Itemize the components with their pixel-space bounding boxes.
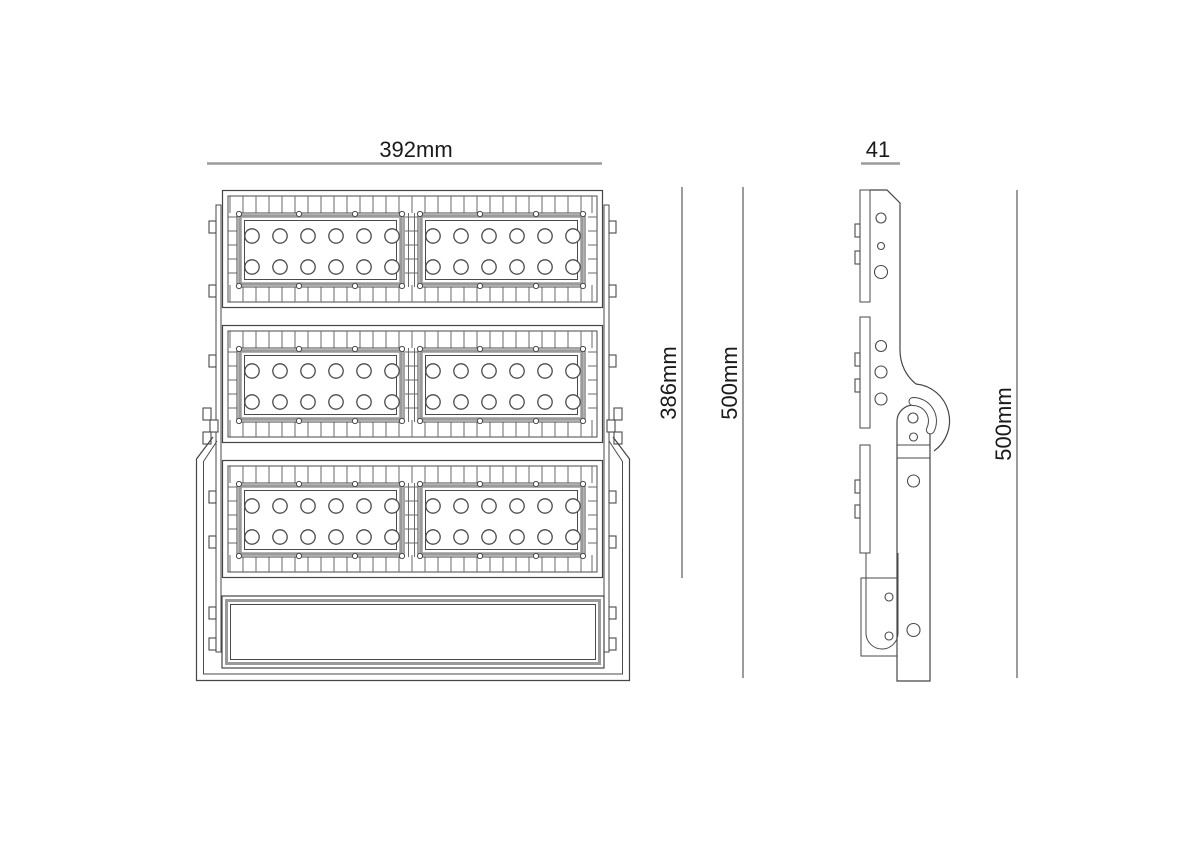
side-height-dimension: 500mm [991,190,1017,678]
side-body-strip [855,190,870,553]
front-height-dimension: 500mm [717,187,743,678]
front-height-label: 500mm [717,346,742,419]
technical-drawing-page: 392mm [0,0,1191,842]
side-bottom-plate [861,553,898,656]
led-section-height-label: 386mm [656,346,681,419]
mounting-arm [897,398,936,682]
led-module-row-2 [223,326,603,443]
driver-box [222,596,604,668]
floodlight-drawing: 392mm [0,0,1191,842]
front-width-dimension-label: 392mm [379,137,452,162]
front-width-dimension: 392mm [207,137,602,164]
led-section-height-dimension: 386mm [656,187,682,578]
side-width-dimension-label: 41 [866,137,890,162]
side-width-dimension: 41 [861,137,900,164]
led-module-row-3 [223,461,603,578]
front-view-drawing: 392mm [197,137,744,681]
led-module-row-1 [223,191,603,308]
side-view-drawing: 41 [855,137,1017,681]
side-height-label: 500mm [991,387,1016,460]
